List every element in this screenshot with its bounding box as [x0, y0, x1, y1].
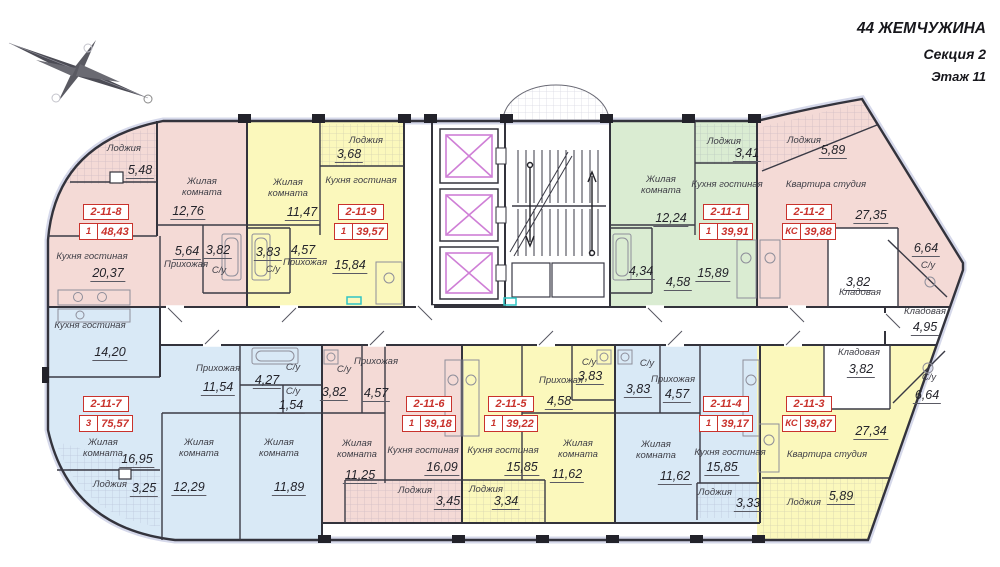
- a4-kitchen-area: 15,85: [704, 460, 739, 476]
- a5-bath-label: С/у: [582, 358, 596, 369]
- apartment-2-11-6-badge: 2-11-6 139,18: [402, 396, 456, 432]
- a7-bath2-area: 1,54: [277, 398, 305, 414]
- a9-living-label: Жилая комната: [257, 178, 319, 199]
- a7-kitchen-area: 14,20: [92, 345, 127, 361]
- a3-loggia-area: 5,89: [827, 489, 855, 505]
- a7-total: 75,57: [98, 416, 132, 431]
- a2-id: 2-11-2: [786, 204, 832, 220]
- a7-bath-area: 4,27: [253, 373, 281, 389]
- a8-total: 48,43: [98, 224, 132, 239]
- a5-living-label: Жилая комната: [547, 439, 609, 460]
- a6-bath-area: 3,82: [320, 385, 348, 401]
- floor-title: Этаж 11: [857, 69, 986, 84]
- a5-living-area: 11,62: [550, 467, 584, 483]
- a6-id: 2-11-6: [406, 396, 452, 412]
- apartment-2-11-3-badge: 2-11-3 КС39,87: [782, 396, 836, 432]
- a7-living2-label: Жилая комната: [168, 438, 230, 459]
- a9-kitchen-area: 15,84: [332, 258, 367, 274]
- floor-plan-page: 44 ЖЕМЧУЖИНА Секция 2 Этаж 11 Лоджия 5,4…: [0, 0, 1000, 567]
- a6-type: 1: [403, 416, 421, 431]
- a6-loggia-label: Лоджия: [398, 486, 432, 497]
- a8-hall-area: 5,64: [173, 244, 201, 260]
- compass-rose-icon: [9, 40, 152, 103]
- a8-hall-label: Прихожая: [164, 260, 208, 271]
- section-title: Секция 2: [857, 46, 986, 62]
- a1-living-label: Жилая комната: [630, 175, 692, 196]
- a4-bath-label: С/у: [640, 359, 654, 370]
- a1-kitchen-area: 15,89: [695, 266, 730, 282]
- common-storage-area: 4,95: [911, 320, 939, 336]
- a7-id: 2-11-7: [83, 396, 129, 412]
- apartment-2-11-5-badge: 2-11-5 139,22: [484, 396, 538, 432]
- a2-loggia-area: 5,89: [819, 143, 847, 159]
- a6-kitchen-label: Кухня гостиная: [387, 446, 458, 457]
- a8-living-area: 12,76: [170, 204, 205, 220]
- plan-header: 44 ЖЕМЧУЖИНА Секция 2 Этаж 11: [857, 20, 986, 84]
- a9-loggia-area: 3,68: [335, 147, 363, 163]
- a6-hall-area: 4,57: [362, 386, 390, 402]
- a2-bath-label: С/у: [921, 261, 935, 272]
- a1-id: 2-11-1: [703, 204, 749, 220]
- a4-loggia-area: 3,33: [734, 496, 762, 512]
- a5-total: 39,22: [503, 416, 537, 431]
- a7-living-area: 16,95: [119, 452, 154, 468]
- a3-storage-area: 3,82: [847, 362, 875, 378]
- a6-living-label: Жилая комната: [326, 439, 388, 460]
- a4-loggia-label: Лоджия: [698, 488, 732, 499]
- a7-living3-area: 11,89: [272, 480, 306, 496]
- a3-bath-label: С/у: [922, 373, 936, 384]
- apartment-2-11-1-badge: 2-11-1 139,91: [699, 204, 753, 240]
- a3-type: КС: [783, 416, 801, 431]
- a4-hall-label: Прихожая: [651, 375, 695, 386]
- apartment-2-11-4-badge: 2-11-4 139,17: [699, 396, 753, 432]
- a3-studio-label: Квартира студия: [787, 450, 867, 461]
- a1-loggia-area: 3,41: [733, 146, 761, 162]
- a3-storage-label: Кладовая: [838, 348, 880, 359]
- a8-bath-area: 3,82: [204, 243, 232, 259]
- apartment-2-11-7-badge: 2-11-7 375,57: [79, 396, 133, 432]
- a8-loggia-area: 5,48: [126, 163, 154, 179]
- a7-living2-area: 12,29: [171, 480, 206, 496]
- a4-type: 1: [700, 416, 718, 431]
- a6-total: 39,18: [421, 416, 455, 431]
- a5-type: 1: [485, 416, 503, 431]
- a4-living-area: 11,62: [658, 469, 692, 485]
- a9-type: 1: [335, 224, 353, 239]
- a9-bath-label: С/у: [266, 265, 280, 276]
- a4-total: 39,17: [718, 416, 752, 431]
- a1-total: 39,91: [718, 224, 752, 239]
- a9-id: 2-11-9: [338, 204, 384, 220]
- common-storage-label: Кладовая: [904, 307, 946, 318]
- a2-type: КС: [783, 224, 801, 239]
- a8-id: 2-11-8: [83, 204, 129, 220]
- a3-bath-area: 6,64: [913, 388, 941, 404]
- a9-bath-area: 3,83: [254, 245, 282, 261]
- a2-loggia-label: Лоджия: [787, 136, 821, 147]
- a9-living-area: 11,47: [285, 205, 319, 221]
- a2-studio-label: Квартира студия: [786, 180, 866, 191]
- a4-bath-area: 3,83: [624, 382, 652, 398]
- stair-dome: [503, 85, 609, 121]
- a8-bath-label: С/у: [212, 266, 226, 277]
- a1-type: 1: [700, 224, 718, 239]
- a4-living-label: Жилая комната: [625, 440, 687, 461]
- a9-total: 39,57: [353, 224, 387, 239]
- apartment-2-11-2-badge: 2-11-2 КС39,88: [782, 204, 836, 240]
- a4-id: 2-11-4: [703, 396, 749, 412]
- a1-living-area: 12,24: [653, 211, 688, 227]
- a7-kitchen-label: Кухня гостиная: [54, 321, 125, 332]
- a7-bath2-label: С/у: [286, 387, 300, 398]
- a1-hall-area: 4,58: [664, 275, 692, 291]
- a5-id: 2-11-5: [488, 396, 534, 412]
- a3-total: 39,87: [801, 416, 835, 431]
- a6-bath-label: С/у: [337, 365, 351, 376]
- a9-hall-label: Прихожая: [283, 258, 327, 269]
- a5-kitchen-label: Кухня гостиная: [467, 446, 538, 457]
- a7-loggia-label: Лоджия: [93, 480, 127, 491]
- a4-kitchen-label: Кухня гостиная: [694, 448, 765, 459]
- a6-loggia-area: 3,45: [434, 494, 462, 510]
- a6-living-area: 11,25: [343, 468, 377, 484]
- a1-kitchen-label: Кухня гостиная: [691, 180, 762, 191]
- a7-loggia-area: 3,25: [130, 481, 158, 497]
- a9-kitchen-label: Кухня гостиная: [325, 176, 396, 187]
- a7-living3-label: Жилая комната: [248, 438, 310, 459]
- building-title: 44 ЖЕМЧУЖИНА: [857, 20, 986, 38]
- apartment-2-11-8-badge: 2-11-8 148,43: [79, 204, 133, 240]
- a3-id: 2-11-3: [786, 396, 832, 412]
- a8-loggia-label: Лоджия: [107, 144, 141, 155]
- a6-kitchen-area: 16,09: [424, 460, 459, 476]
- a8-kitchen-area: 20,37: [90, 266, 125, 282]
- a7-hall-area: 11,54: [201, 380, 235, 396]
- a1-bath-area: 4,34: [627, 264, 655, 280]
- a8-living-label: Жилая комната: [171, 177, 233, 198]
- a7-hall-label: Прихожая: [196, 364, 240, 375]
- a7-type: 3: [80, 416, 98, 431]
- a3-loggia-label: Лоджия: [787, 498, 821, 509]
- apartment-2-11-9-badge: 2-11-9 139,57: [334, 204, 388, 240]
- a7-bath-label: С/у: [286, 363, 300, 374]
- a9-loggia-label: Лоджия: [349, 136, 383, 147]
- a3-studio-area: 27,34: [853, 424, 888, 440]
- a2-bath-area: 6,64: [912, 241, 940, 257]
- a5-hall-area: 4,58: [545, 394, 573, 410]
- a6-hall-label: Прихожая: [354, 357, 398, 368]
- a8-type: 1: [80, 224, 98, 239]
- a5-hall-label: Прихожая: [539, 376, 583, 387]
- a4-hall-area: 4,57: [663, 387, 691, 403]
- a2-studio-area: 27,35: [853, 208, 888, 224]
- a5-kitchen-area: 15,85: [504, 460, 539, 476]
- a8-kitchen-label: Кухня гостиная: [56, 252, 127, 263]
- a2-storage-label: Кладовая: [839, 288, 881, 299]
- a2-total: 39,88: [801, 224, 835, 239]
- a5-loggia-area: 3,34: [492, 494, 520, 510]
